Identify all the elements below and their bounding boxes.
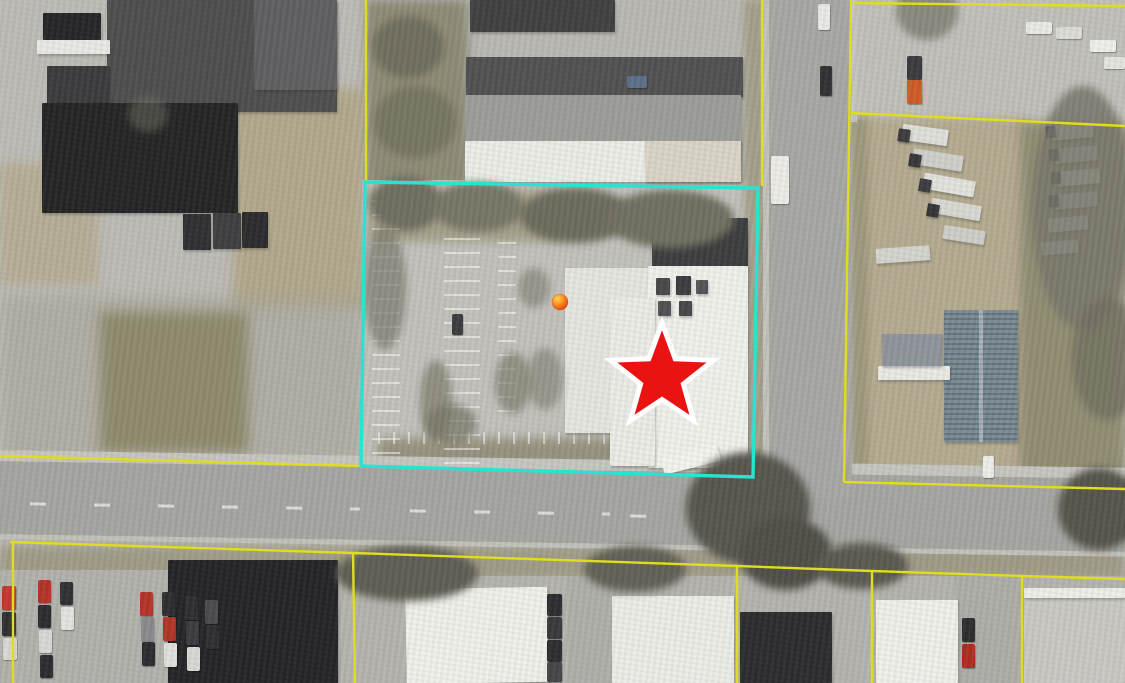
boundary-line [10,542,1125,579]
parcel-boundary-lines [0,0,1125,683]
boundary-line [853,3,1125,6]
aerial-map-canvas[interactable] [0,0,1125,683]
boundary-line [844,482,1125,489]
star-marker[interactable] [611,323,714,421]
parcel-overlay [0,0,1125,683]
boundary-line [851,113,1125,126]
boundary-line [844,0,851,482]
boundary-line [0,456,361,466]
location-pin-marker[interactable] [552,294,568,310]
selected-parcel-outline[interactable] [361,182,758,477]
boundary-line [353,553,355,683]
